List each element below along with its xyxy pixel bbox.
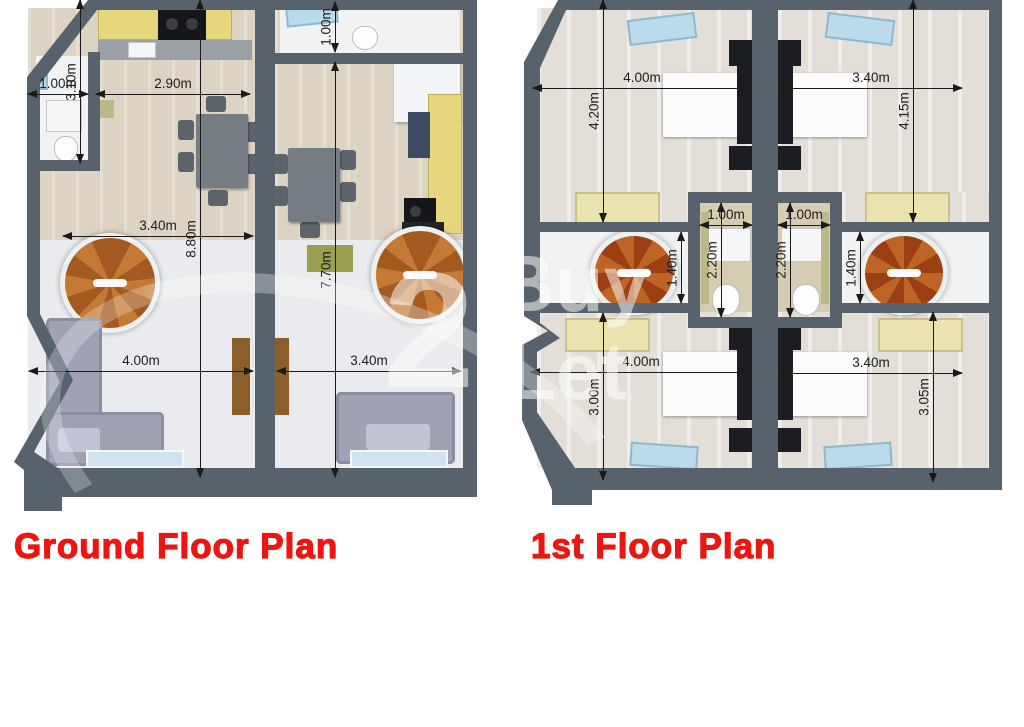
ground-bathroom-wall — [88, 52, 100, 168]
dimension-bath-right-width: 1.00m — [778, 225, 830, 226]
floor-plan-image: { "titles": { "ground": "Ground Floor Pl… — [0, 0, 1024, 596]
first-bathroom-wall — [830, 192, 842, 328]
first-landing-wall — [537, 222, 688, 232]
dimension-label: 2.20m — [705, 241, 720, 279]
dimension-bed-bl-width: 4.00m — [531, 372, 751, 373]
dimension-bath-left-width: 1.00m — [700, 225, 752, 226]
ground-floor-title: Ground Floor Plan — [14, 527, 338, 567]
dimension-bed-tr-width: 3.40m — [780, 88, 962, 89]
first-party-wall — [752, 8, 778, 470]
dimension-label: 3.40m — [350, 353, 388, 368]
dimension-kitchen-width: 2.90m — [96, 94, 250, 95]
dimension-label: 1.00m — [707, 207, 745, 222]
dimension-label: 4.15m — [897, 92, 912, 130]
dimension-label: 3.00m — [587, 378, 602, 416]
dimension-label: 2.20m — [774, 241, 789, 279]
dimension-label: 2.90m — [154, 76, 192, 91]
dimension-label: 3.40m — [852, 70, 890, 85]
dimension-label: 4.20m — [587, 92, 602, 130]
first-bathroom-wall — [688, 192, 700, 328]
dimension-unit-right-depth: 7.70m — [335, 62, 336, 477]
dimension-label: 4.00m — [623, 70, 661, 85]
dimension-bath-width: 1.00m — [28, 94, 88, 95]
first-bathroom-wall — [688, 192, 842, 203]
dimension-landing-right-depth: 1.40m — [860, 232, 861, 303]
dimension-bed-tr-depth: 4.15m — [913, 0, 914, 222]
dimension-bath-right-depth: 2.20m — [790, 203, 791, 317]
first-landing-wall — [537, 303, 688, 313]
first-bathroom-wall — [688, 317, 842, 328]
dimension-label: 3.40m — [852, 355, 890, 370]
dimension-unit-left-depth: 8.80m — [200, 0, 201, 477]
dimension-bed-br-width: 3.40m — [780, 373, 962, 374]
dimension-landing-left-depth: 1.40m — [681, 232, 682, 303]
dimension-label: 7.70m — [319, 251, 334, 289]
dimension-bath-left-depth: 2.20m — [721, 203, 722, 317]
ground-bathroom-wall — [36, 160, 100, 171]
ground-floor-wall-outline — [14, 0, 477, 511]
ground-wc-wall — [275, 53, 463, 64]
dimension-living-width: 3.40m — [63, 236, 253, 237]
dimension-label: 1.40m — [844, 249, 859, 287]
dimension-wc-depth: 1.00m — [335, 2, 336, 52]
first-floor-title: 1st Floor Plan — [531, 527, 776, 567]
dimension-bed-tl-width: 4.00m — [533, 88, 751, 89]
dimension-bed-bl-depth: 3.00m — [603, 313, 604, 480]
dimension-label: 4.00m — [122, 353, 160, 368]
first-landing-wall — [842, 303, 989, 313]
dimension-label: 3.40m — [139, 218, 177, 233]
dimension-label: 8.80m — [184, 220, 199, 258]
dimension-label: 1.00m — [319, 8, 334, 46]
dimension-label: 3.10m — [64, 63, 79, 101]
dimension-label: 3.05m — [917, 378, 932, 416]
dimension-lounge-left-width: 4.00m — [29, 371, 253, 372]
dimension-bed-br-depth: 3.05m — [933, 312, 934, 482]
dimension-label: 4.00m — [622, 354, 660, 369]
dimension-bath-depth: 3.10m — [80, 0, 81, 163]
dimension-lounge-right-width: 3.40m — [277, 371, 461, 372]
dimension-label: 1.40m — [665, 249, 680, 287]
ground-party-wall — [255, 8, 275, 470]
dimension-bed-tl-depth: 4.20m — [603, 0, 604, 222]
